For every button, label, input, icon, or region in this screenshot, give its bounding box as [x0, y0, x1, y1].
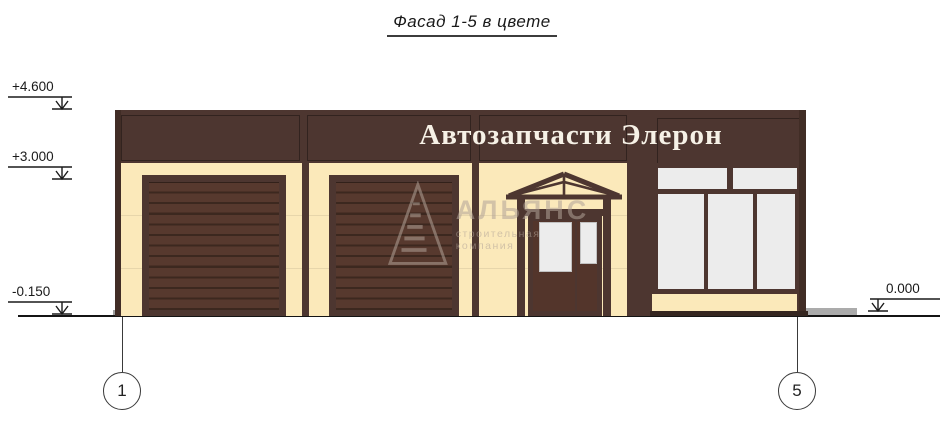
signboard-text: Автозапчасти Элерон [371, 113, 771, 157]
storefront-window-pane-2 [708, 194, 753, 289]
grid-label-5: 5 [792, 381, 801, 401]
svg-text:+3.000: +3.000 [12, 149, 54, 164]
elevation-marker-4600: +4.600 [6, 76, 90, 114]
grid-bubble-5: 5 [778, 372, 816, 410]
grid-line-1 [122, 317, 123, 372]
svg-text:-0.150: -0.150 [12, 284, 50, 299]
door-glass-right [580, 222, 597, 264]
door-glass-left [539, 222, 572, 272]
elevation-marker-0000: 0.000 [856, 276, 944, 316]
storefront-window-pane-3 [757, 194, 795, 289]
svg-text:+4.600: +4.600 [12, 79, 54, 94]
entrance-post-left [517, 199, 525, 316]
elevation-marker-3000: +3.000 [6, 146, 90, 184]
building-right-edge [799, 110, 806, 316]
entrance-lintel [525, 209, 603, 216]
garage-door-2 [336, 182, 452, 310]
storefront-transom-window-1 [658, 168, 727, 189]
drawing-title: Фасад 1-5 в цвете [0, 12, 944, 37]
drawing-title-text: Фасад 1-5 в цвете [387, 12, 557, 37]
pilaster-divider [472, 163, 479, 316]
entrance-pediment-truss [480, 166, 630, 202]
storefront-base [650, 311, 808, 316]
grid-label-1: 1 [117, 381, 126, 401]
building-left-edge [115, 110, 121, 316]
svg-text:0.000: 0.000 [886, 281, 920, 296]
elevation-marker-minus-0150: -0.150 [6, 281, 90, 319]
storefront-stallboard [652, 294, 797, 311]
facade-drawing-canvas: Фасад 1-5 в цвете Автозапчасти Элерон [0, 0, 944, 425]
grid-bubble-1: 1 [103, 372, 141, 410]
entrance-post-right [603, 199, 611, 316]
storefront-transom-window-2 [733, 168, 797, 189]
fascia-panel-1 [121, 115, 300, 161]
grid-line-5 [797, 317, 798, 372]
garage-door-1 [149, 182, 279, 310]
storefront-window-pane-1 [658, 194, 704, 289]
pilaster-divider [302, 163, 309, 316]
